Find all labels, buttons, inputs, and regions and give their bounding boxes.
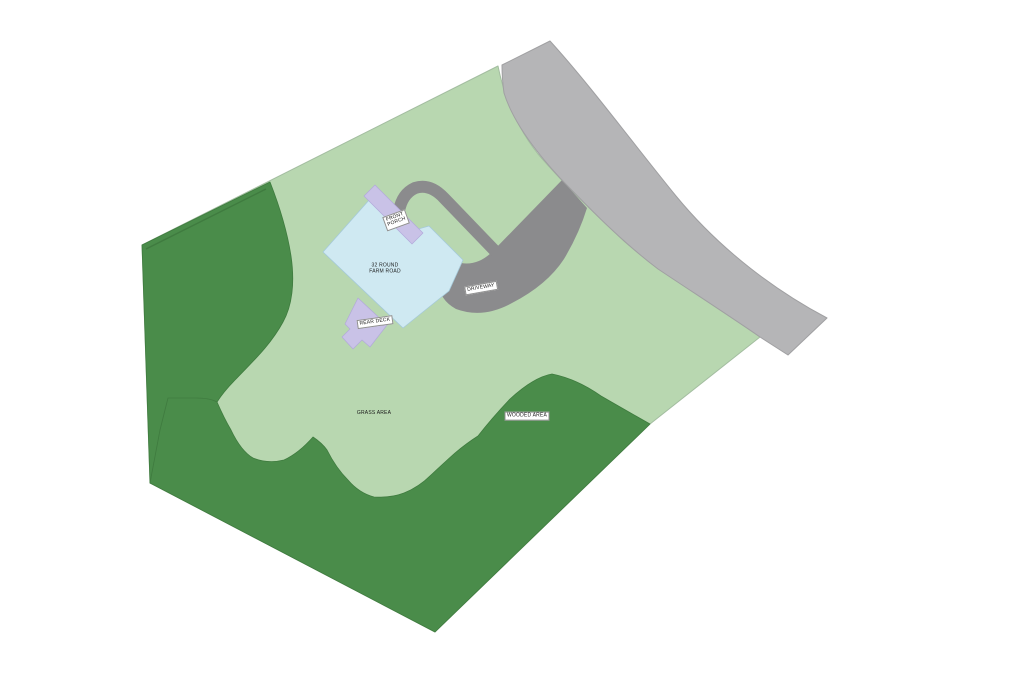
site-plan-canvas: 32 ROUND FARM ROAD FRONT PORCH REAR DECK… bbox=[0, 0, 1024, 683]
site-plan-drawing bbox=[0, 0, 1024, 683]
